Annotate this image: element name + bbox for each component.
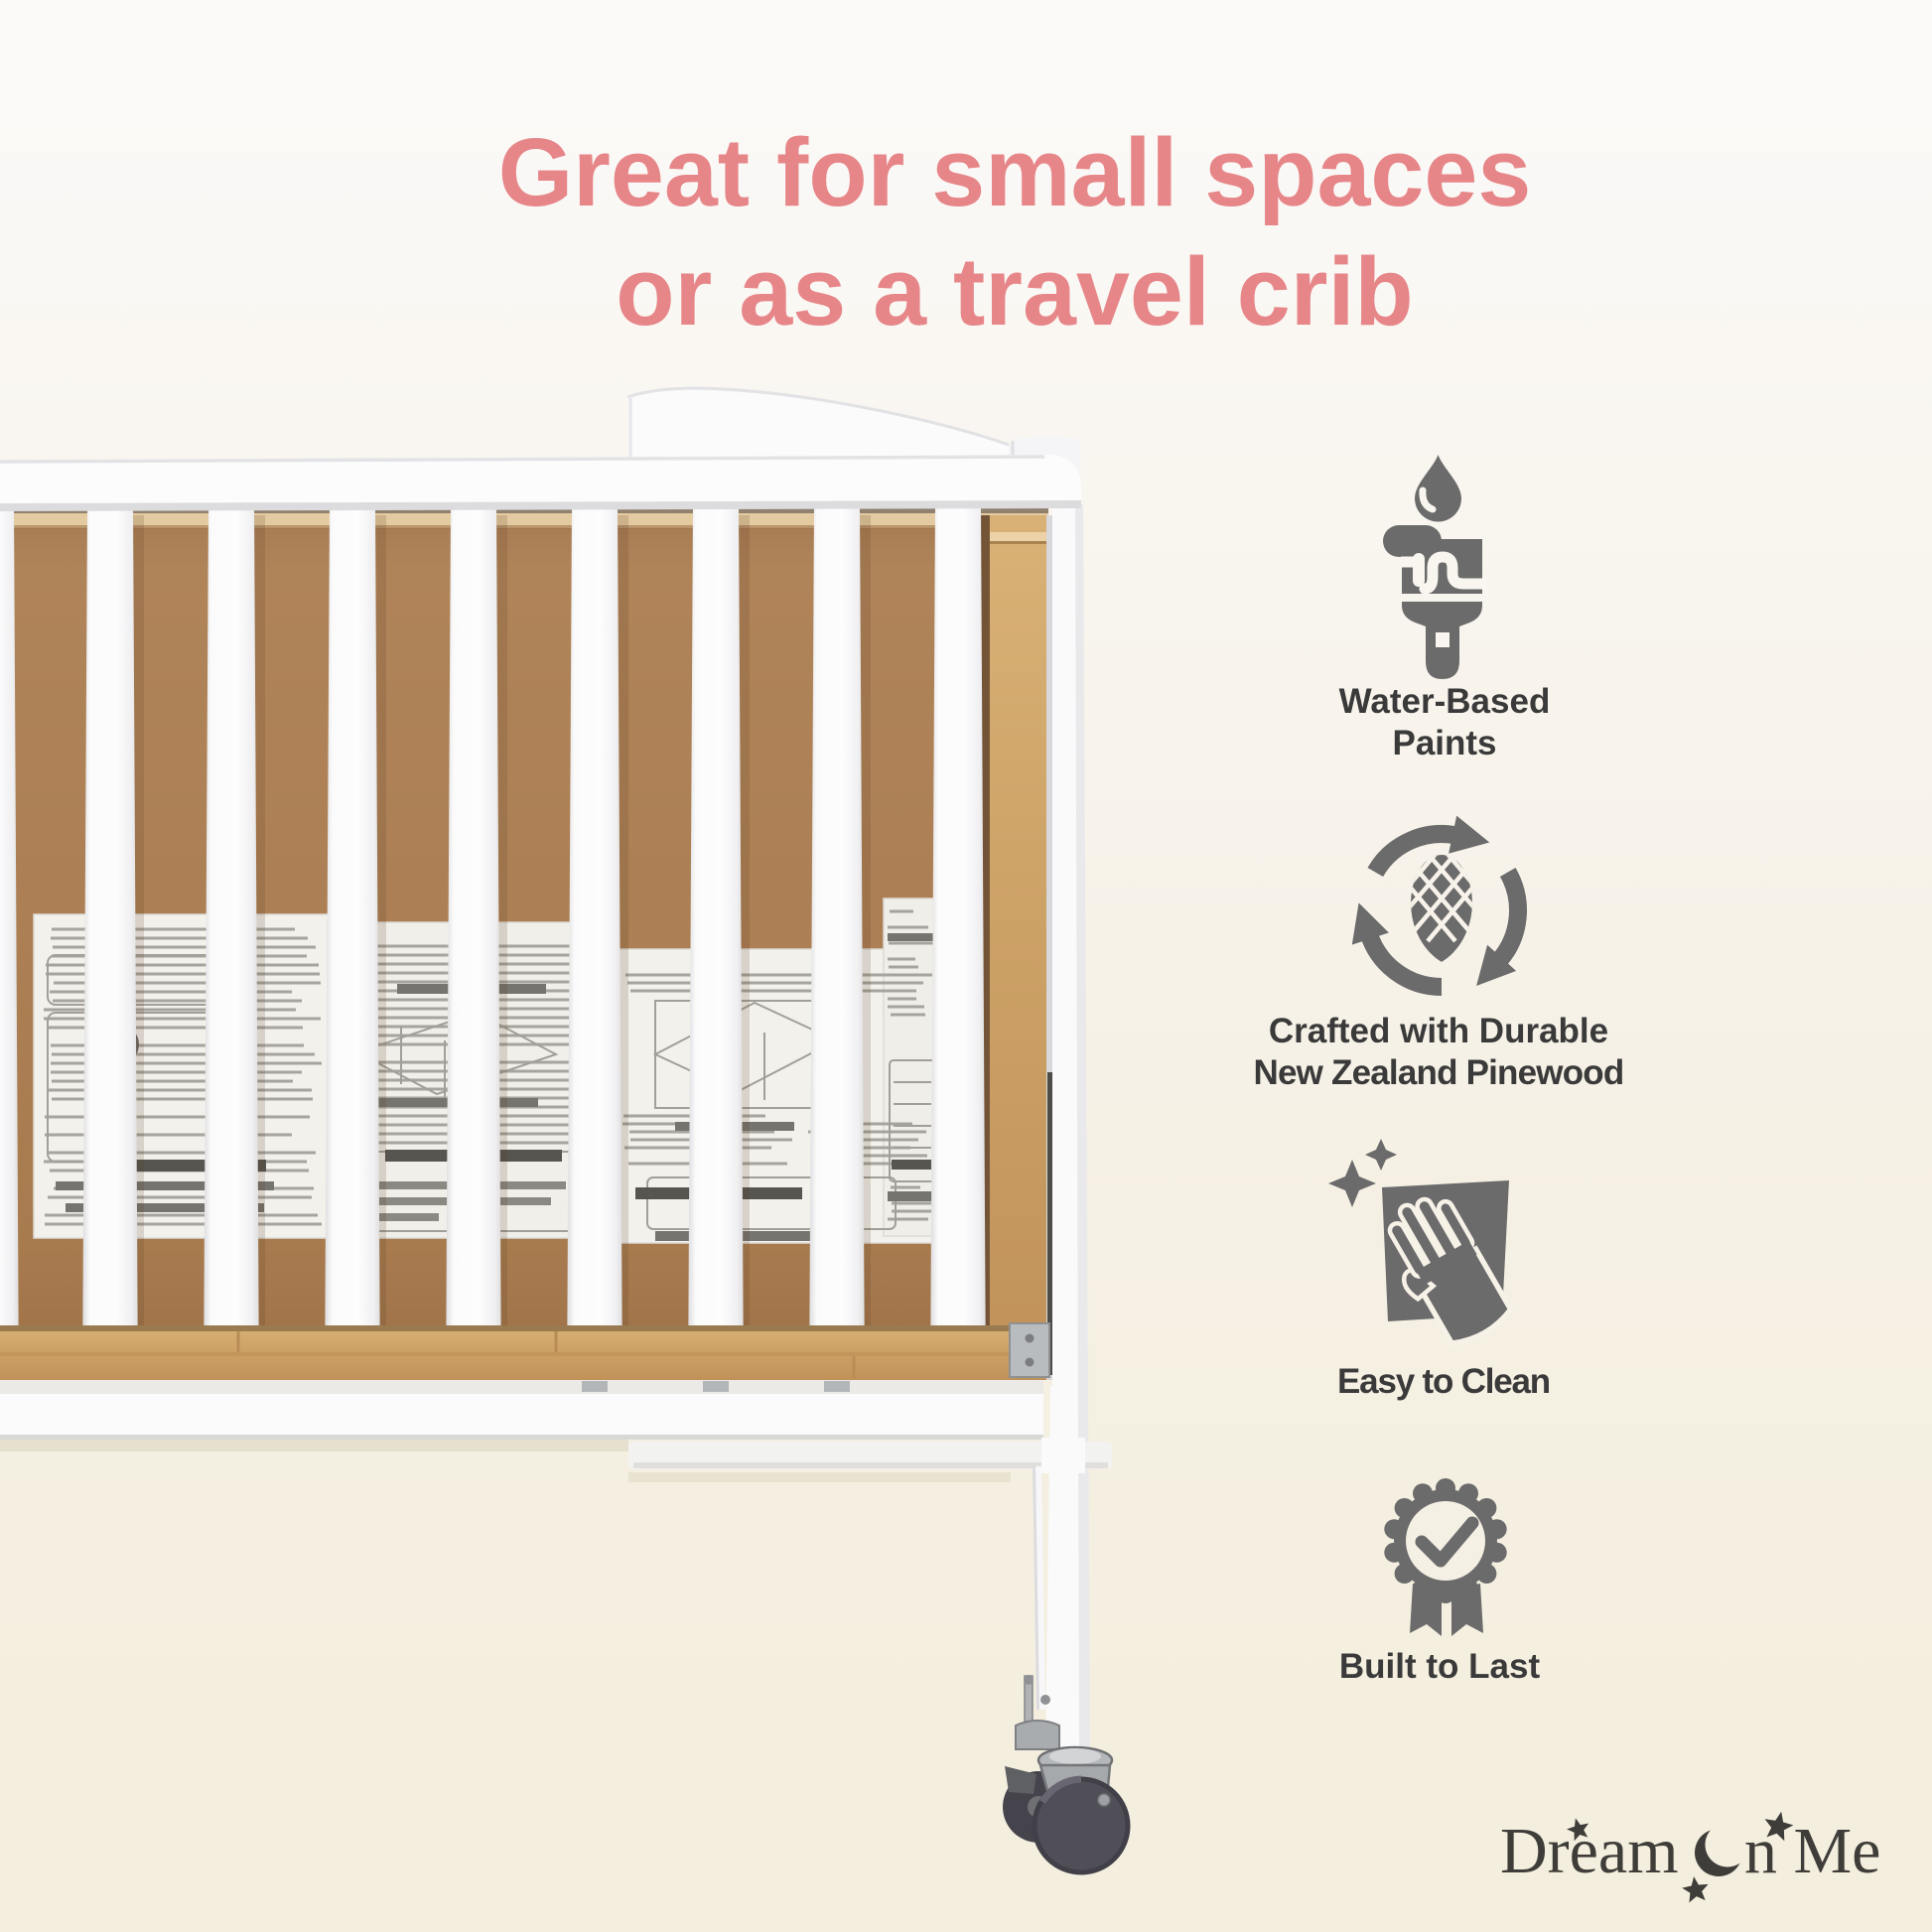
svg-text:or as a travel crib: or as a travel crib bbox=[616, 237, 1413, 345]
svg-text:Water-Based: Water-Based bbox=[1339, 682, 1551, 721]
svg-text:Paints: Paints bbox=[1392, 724, 1496, 762]
svg-text:Easy to Clean: Easy to Clean bbox=[1337, 1362, 1550, 1401]
svg-text:Great for small spaces: Great for small spaces bbox=[498, 118, 1532, 226]
svg-text:Crafted with Durable: Crafted with Durable bbox=[1269, 1012, 1608, 1050]
svg-text:Built to Last: Built to Last bbox=[1339, 1647, 1541, 1686]
svg-text:Dream: Dream bbox=[1500, 1815, 1679, 1887]
svg-text:n Me: n Me bbox=[1744, 1815, 1880, 1887]
svg-text:New Zealand Pinewood: New Zealand Pinewood bbox=[1254, 1053, 1624, 1092]
